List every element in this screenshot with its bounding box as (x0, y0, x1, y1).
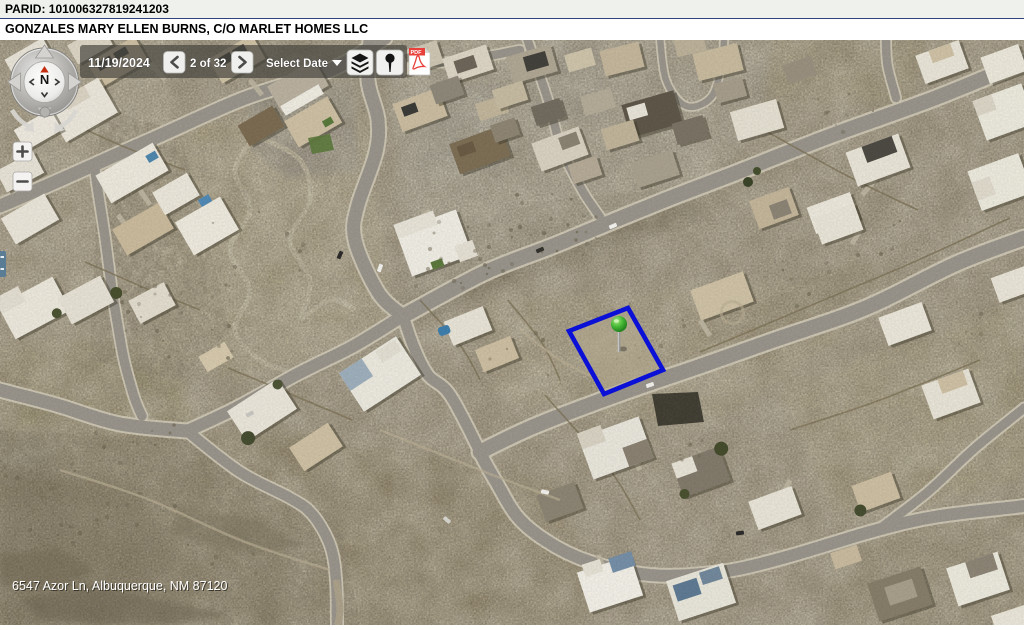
svg-text:11/19/2024: 11/19/2024 (88, 56, 150, 70)
svg-text:6547 Azor Ln, Albuquerque, NM: 6547 Azor Ln, Albuquerque, NM 87120 (12, 579, 227, 593)
svg-text:Select Date: Select Date (266, 58, 328, 70)
svg-text:N: N (40, 72, 49, 87)
svg-text:2 of 32: 2 of 32 (190, 58, 226, 70)
svg-text:PDF: PDF (411, 50, 423, 56)
